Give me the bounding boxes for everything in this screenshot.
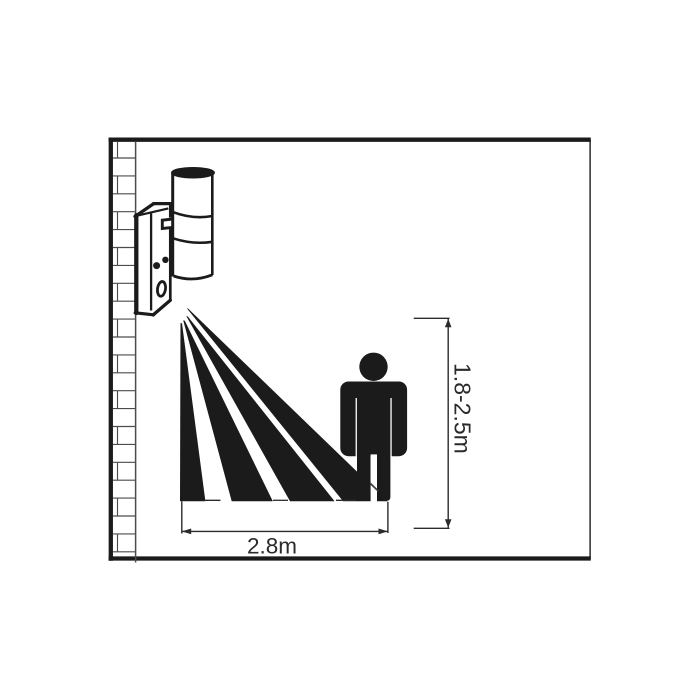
svg-text:1.8-2.5m: 1.8-2.5m — [449, 363, 475, 454]
svg-text:2.8m: 2.8m — [247, 533, 297, 558]
